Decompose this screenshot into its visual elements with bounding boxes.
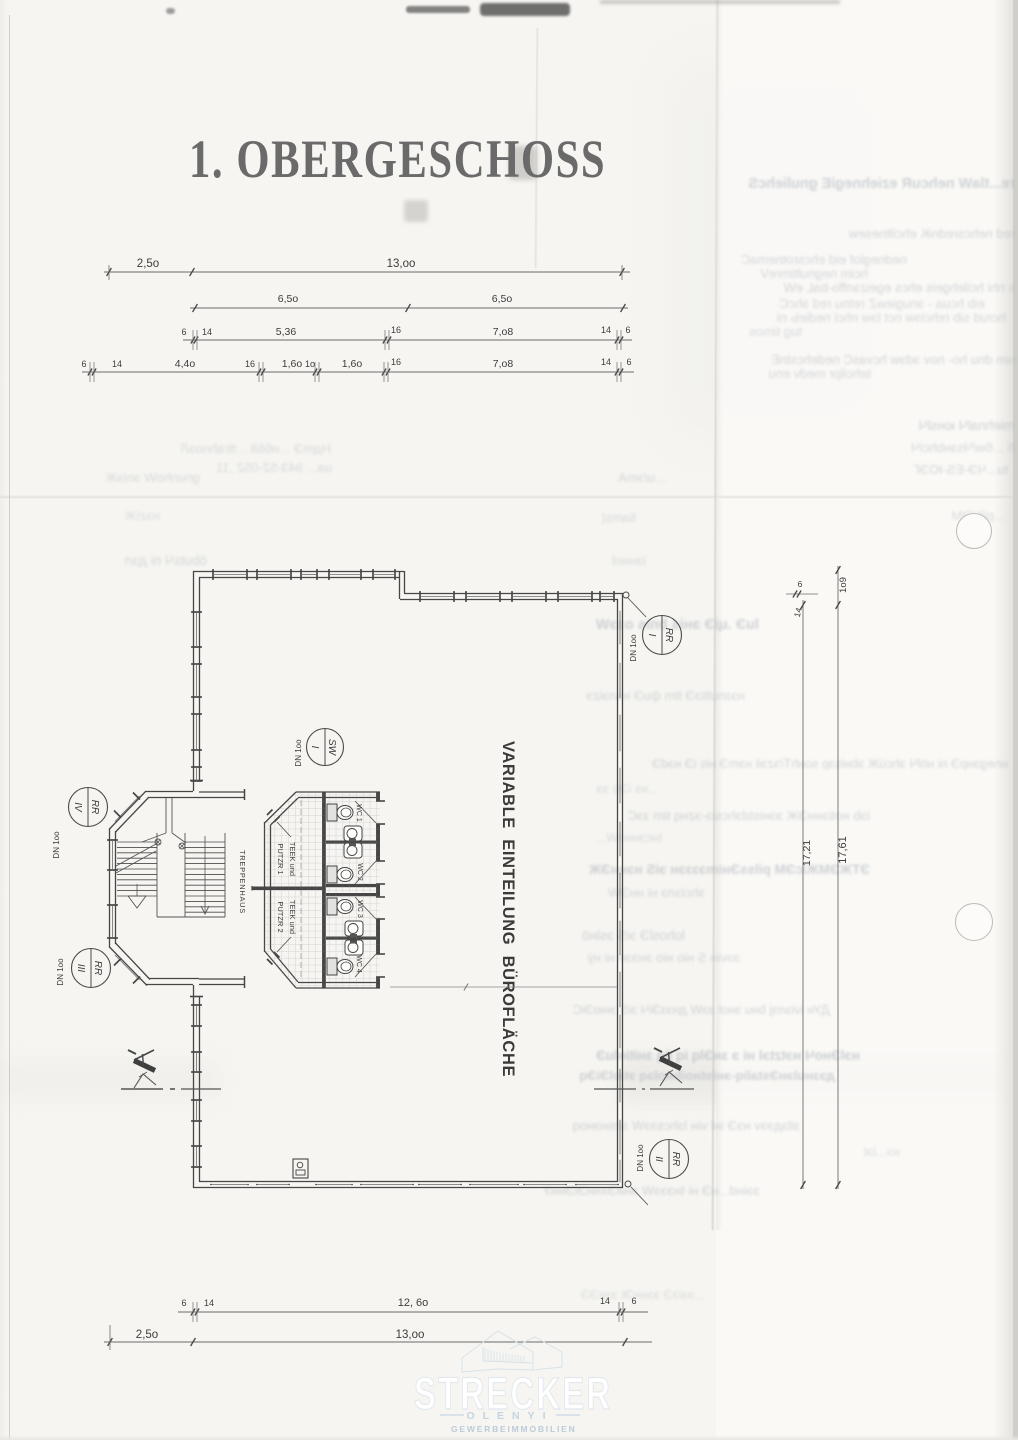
svg-text:OLENYI: OLENYI — [466, 1410, 553, 1422]
